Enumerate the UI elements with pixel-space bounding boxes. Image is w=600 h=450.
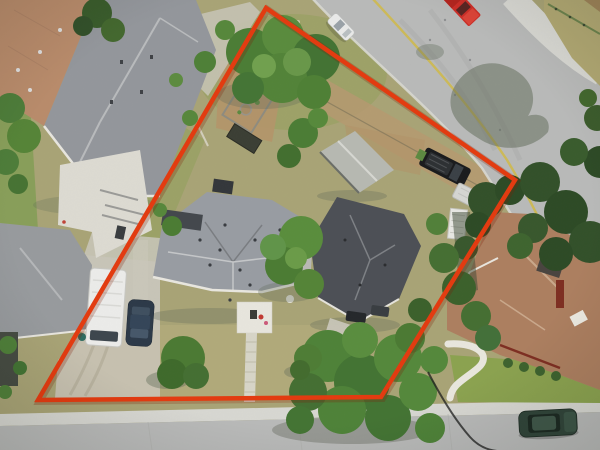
- vignette: [0, 0, 600, 450]
- aerial-photo: [0, 0, 600, 450]
